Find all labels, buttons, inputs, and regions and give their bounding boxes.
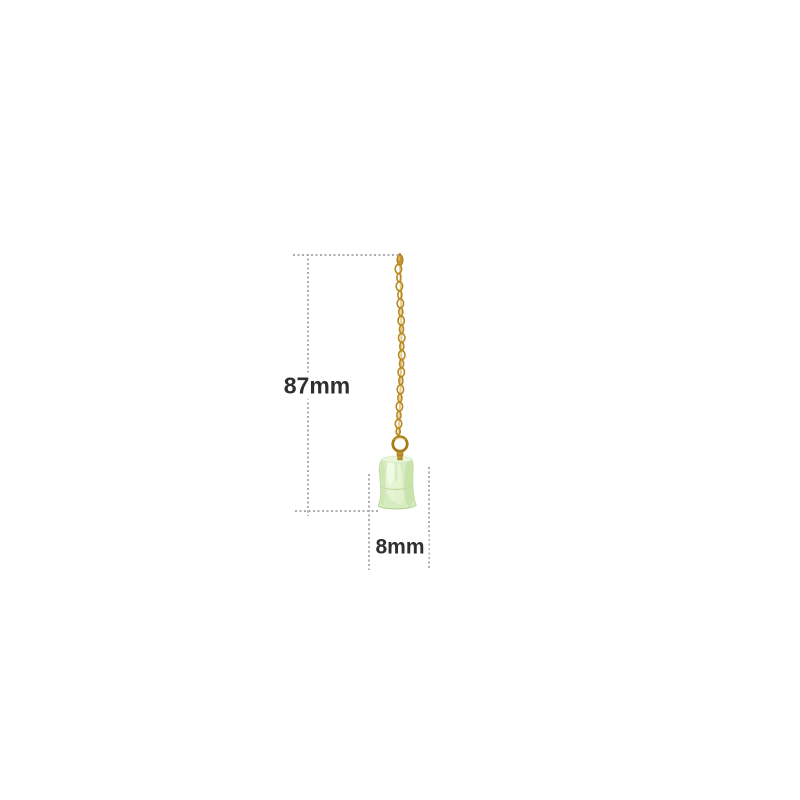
bead-pin-overlap xyxy=(398,456,403,461)
jump-ring xyxy=(393,437,407,451)
product-dimension-diagram: 87mm 8mm xyxy=(0,0,800,800)
earring-image xyxy=(0,0,800,800)
dimension-line-length-bottom-tick xyxy=(295,510,378,512)
dimension-line-length-top-tick xyxy=(293,254,400,256)
pendant-bead xyxy=(378,456,416,509)
chain xyxy=(395,263,405,435)
width-label: 8mm xyxy=(371,535,428,560)
dimension-line-width-left xyxy=(368,474,370,570)
length-label: 87mm xyxy=(280,373,354,400)
